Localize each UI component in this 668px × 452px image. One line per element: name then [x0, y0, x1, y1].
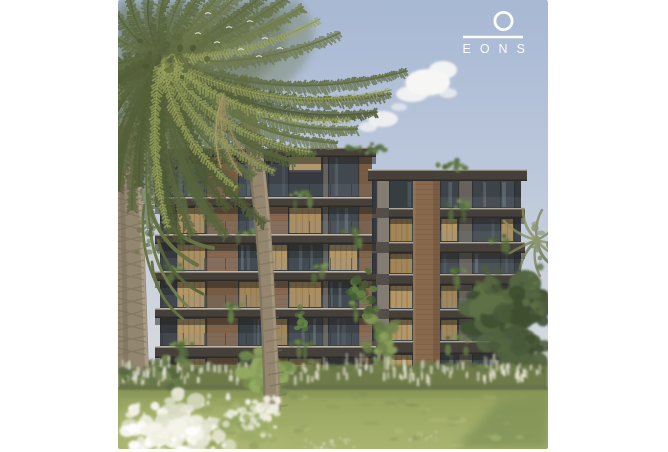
svg-text:EONS: EONS	[463, 42, 534, 56]
